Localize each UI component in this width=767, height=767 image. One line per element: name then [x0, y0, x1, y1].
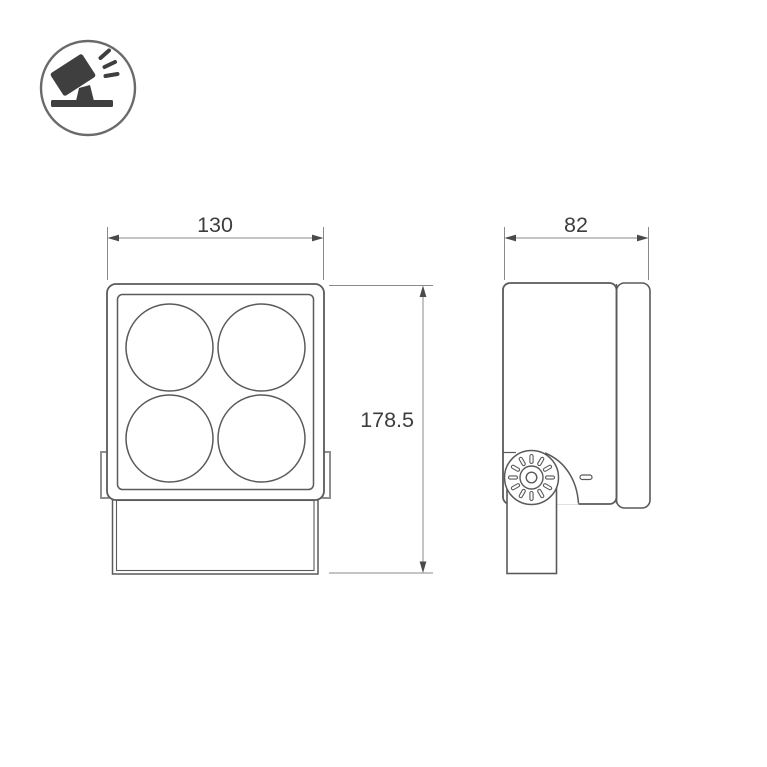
- product-category-icon: [41, 41, 135, 135]
- side-view: [503, 283, 650, 574]
- depth-dimension-label: 82: [564, 213, 588, 237]
- side-back-panel: [617, 283, 651, 508]
- arrowhead-left-icon: [108, 235, 120, 242]
- height-dimension-label: 178.5: [360, 408, 414, 432]
- bracket-base-outer: [113, 497, 319, 574]
- floodlight-base: [51, 100, 113, 107]
- arrowhead-up-icon: [420, 286, 427, 298]
- adjustment-knuckle: [505, 451, 559, 505]
- height-dimension: 178.5: [329, 286, 433, 574]
- width-dimension-label: 130: [197, 213, 233, 237]
- front-view: [101, 284, 330, 574]
- technical-drawing-page: 130 82 178.5: [0, 0, 767, 767]
- width-dimension: 130: [108, 213, 324, 280]
- arrowhead-down-icon: [420, 562, 427, 574]
- floodlight-dimension-drawing: 130 82 178.5: [0, 0, 767, 767]
- knuckle-disc: [505, 451, 559, 505]
- arrowhead-right-icon: [312, 235, 324, 242]
- depth-dimension: 82: [505, 213, 649, 280]
- arrowhead-left-icon: [505, 235, 517, 242]
- arrowhead-right-icon: [637, 235, 649, 242]
- light-ray-icon: [106, 74, 118, 76]
